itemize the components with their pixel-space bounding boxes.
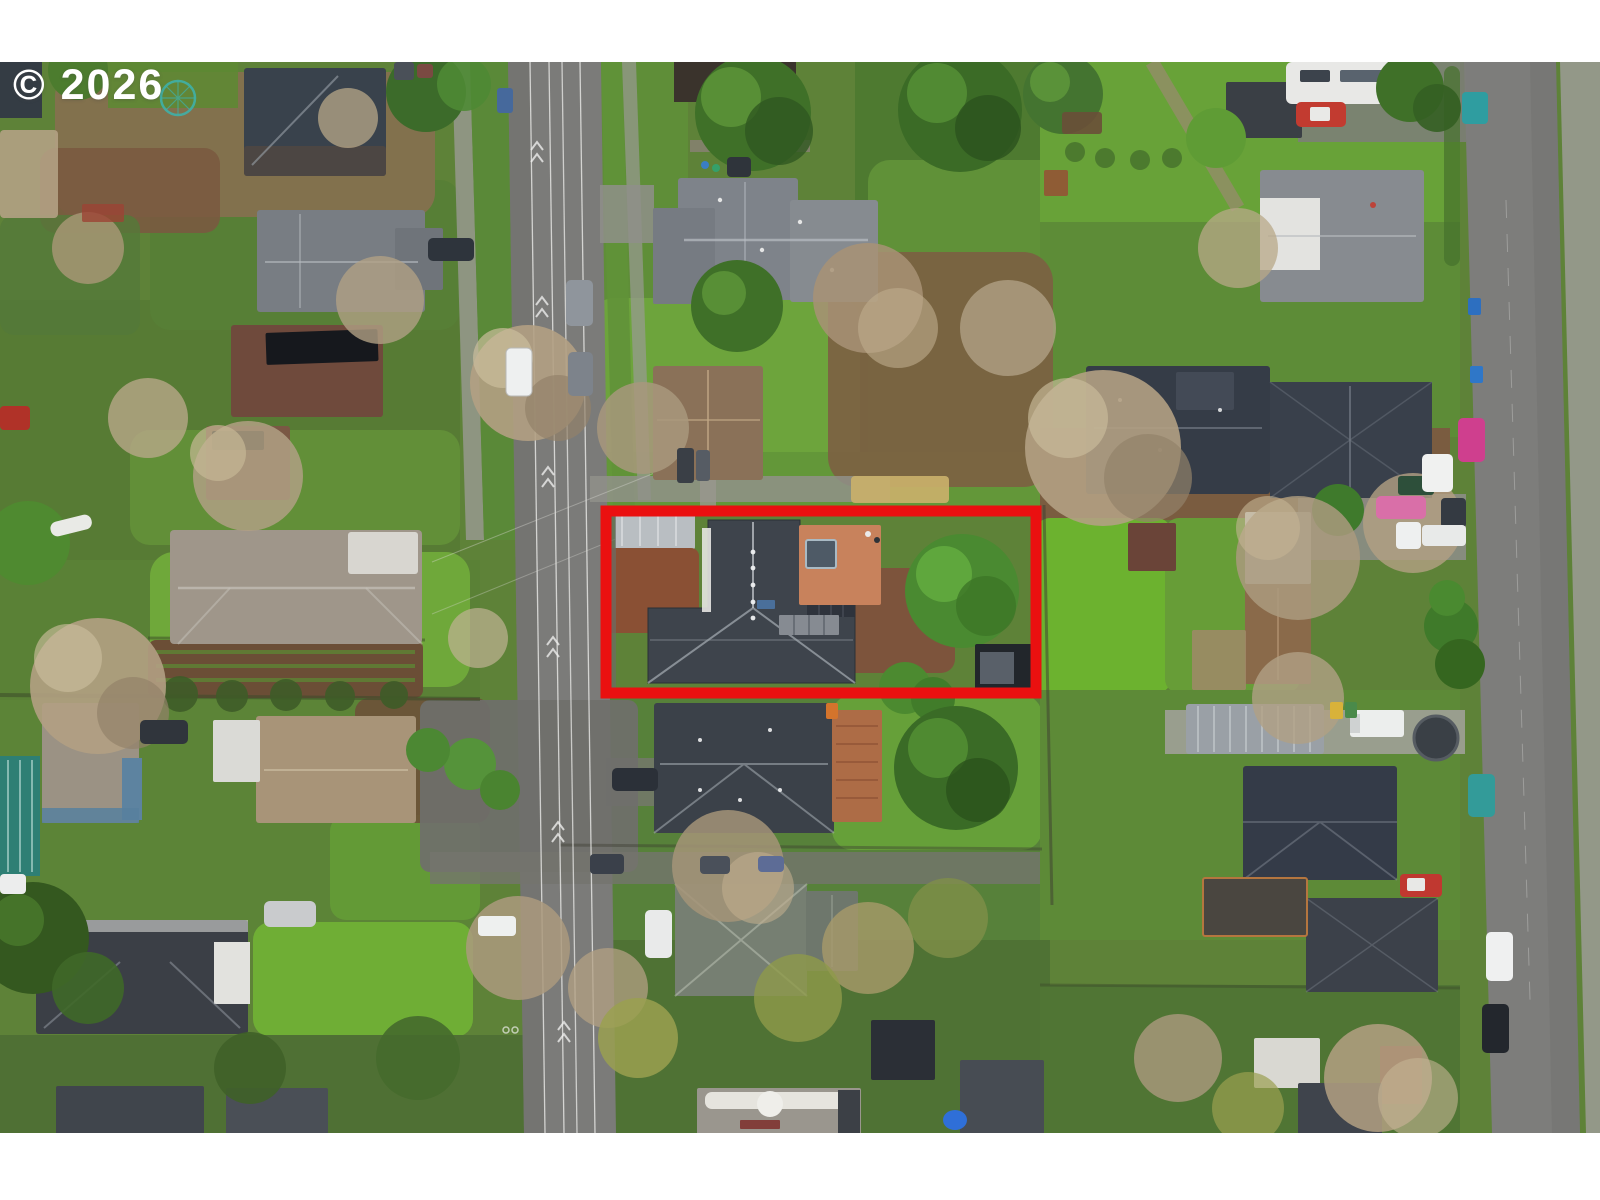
lawn-patch — [253, 922, 473, 1037]
car — [1441, 498, 1466, 528]
car — [566, 280, 593, 326]
tree-bare — [1134, 1014, 1222, 1102]
van — [645, 910, 672, 958]
tree-bare — [1104, 434, 1192, 522]
hedge-bush — [270, 679, 302, 711]
tree-evergreen — [1030, 62, 1070, 102]
roof-vent — [778, 788, 782, 792]
roof-vent — [751, 600, 756, 605]
roof-gable — [348, 532, 418, 574]
tree-bare — [448, 608, 508, 668]
shed-roof — [1128, 523, 1176, 571]
bin — [1330, 702, 1343, 719]
shed-panel — [980, 652, 1014, 684]
tree-bare — [597, 382, 689, 474]
tree-evergreen — [745, 97, 813, 165]
tree-bare — [1028, 378, 1108, 458]
house-wall-blue — [42, 808, 139, 823]
bin — [1470, 366, 1483, 383]
aerial-photo — [0, 0, 1600, 1200]
car — [696, 450, 710, 481]
roof-vent — [751, 550, 756, 555]
bin — [1468, 298, 1481, 315]
tree-evergreen — [437, 57, 491, 111]
truck — [1422, 525, 1466, 546]
car — [1462, 92, 1488, 124]
brick-patio — [1044, 170, 1068, 196]
tarp — [943, 1110, 967, 1130]
garage-roof — [213, 720, 260, 782]
car — [1396, 522, 1421, 549]
car — [700, 856, 730, 874]
car — [1376, 496, 1426, 519]
tree-evergreen — [1429, 580, 1465, 616]
person — [701, 161, 709, 169]
car — [417, 64, 433, 78]
tree-olive — [598, 998, 678, 1078]
tree-round — [1186, 108, 1246, 168]
car — [0, 406, 30, 430]
roof-vent — [718, 198, 722, 202]
tree-evergreen — [52, 952, 124, 1024]
tree-olive — [754, 954, 842, 1042]
tree-bare — [108, 378, 188, 458]
brick-patio — [82, 204, 124, 222]
play-dome-struts — [161, 81, 195, 115]
bush — [1065, 142, 1085, 162]
car — [1482, 1004, 1509, 1053]
bin — [1345, 702, 1357, 718]
tree-evergreen — [955, 95, 1021, 161]
shed-roof — [871, 1020, 935, 1080]
tree-bare — [466, 896, 570, 1000]
car — [0, 874, 26, 894]
patio-chair — [865, 531, 871, 537]
truck — [1422, 454, 1453, 492]
car — [478, 916, 516, 936]
dormer — [757, 1091, 783, 1117]
house-roof — [1192, 630, 1246, 690]
skylight-blue — [757, 600, 775, 609]
tree-bare — [1252, 652, 1344, 744]
house-roof — [1203, 878, 1307, 936]
bush — [406, 728, 450, 772]
rv-window — [1300, 70, 1330, 82]
hedge-bush — [380, 681, 408, 709]
tree-bare — [52, 212, 124, 284]
car-roof — [1310, 107, 1330, 121]
driveway — [600, 185, 654, 243]
roof-vent — [751, 583, 756, 588]
car — [1486, 932, 1513, 981]
tree-bare — [858, 288, 938, 368]
roof-vent — [751, 616, 756, 621]
bush — [1162, 148, 1182, 168]
tree-bare — [318, 88, 378, 148]
bin — [826, 703, 838, 719]
tree-bare — [1198, 208, 1278, 288]
person — [712, 164, 720, 172]
car — [758, 856, 784, 872]
screenshot-root: © 2026 — [0, 0, 1600, 1200]
hedge-bush — [216, 680, 248, 712]
tree-evergreen — [1435, 639, 1485, 689]
car — [497, 88, 513, 113]
house-wall — [214, 942, 250, 1004]
bush — [480, 770, 520, 810]
roof-vent — [698, 788, 702, 792]
photo-scene — [0, 40, 1600, 1144]
tree-bare — [960, 280, 1056, 376]
house-roof — [0, 130, 58, 218]
tree-bare — [336, 256, 424, 344]
tree-dark — [214, 1032, 286, 1104]
patio-chair — [874, 537, 880, 543]
tree-bare — [34, 624, 102, 692]
roof-object-red — [1370, 202, 1376, 208]
house-roof — [960, 1060, 1044, 1134]
tree-evergreen — [1413, 84, 1461, 132]
deck — [832, 710, 882, 822]
car — [428, 238, 474, 261]
bush — [1130, 150, 1150, 170]
tree-evergreen — [946, 758, 1010, 822]
car — [612, 768, 658, 791]
tree-bare — [190, 425, 246, 481]
tree-dark — [376, 1016, 460, 1100]
tree-evergreen — [702, 271, 746, 315]
garage-roof — [615, 513, 695, 549]
roof-vent — [768, 728, 772, 732]
roof-vent — [751, 566, 756, 571]
house-roof — [838, 1090, 860, 1135]
hot-tub — [806, 540, 836, 568]
bush — [1095, 148, 1115, 168]
car — [677, 448, 694, 483]
roof-vent — [1218, 408, 1222, 412]
tree-olive — [908, 878, 988, 958]
house-roof — [56, 1086, 204, 1135]
tree-bare — [1378, 1058, 1458, 1138]
tree-olive — [1212, 1072, 1284, 1144]
car — [1468, 774, 1495, 817]
car — [568, 352, 593, 396]
house-wall — [702, 528, 711, 612]
car — [264, 901, 316, 927]
roof-vent — [698, 738, 702, 742]
car-roof — [1407, 878, 1425, 891]
straw-garden — [851, 476, 949, 503]
copyright-watermark: © 2026 — [13, 64, 164, 107]
car — [506, 348, 532, 396]
roof-vent — [738, 798, 742, 802]
tree-evergreen — [907, 63, 967, 123]
car — [590, 854, 624, 874]
car — [727, 157, 751, 177]
car — [1458, 418, 1485, 462]
car — [140, 720, 188, 744]
roof-vent — [798, 220, 802, 224]
car — [394, 62, 414, 80]
hedge-bush — [325, 681, 355, 711]
tree-canopy — [956, 576, 1016, 636]
garden-bed — [1062, 112, 1102, 134]
tree-bare — [1236, 496, 1300, 560]
window-row — [740, 1120, 780, 1129]
roof-vent — [760, 248, 764, 252]
trampoline — [1414, 716, 1458, 760]
dormer — [1176, 372, 1234, 410]
